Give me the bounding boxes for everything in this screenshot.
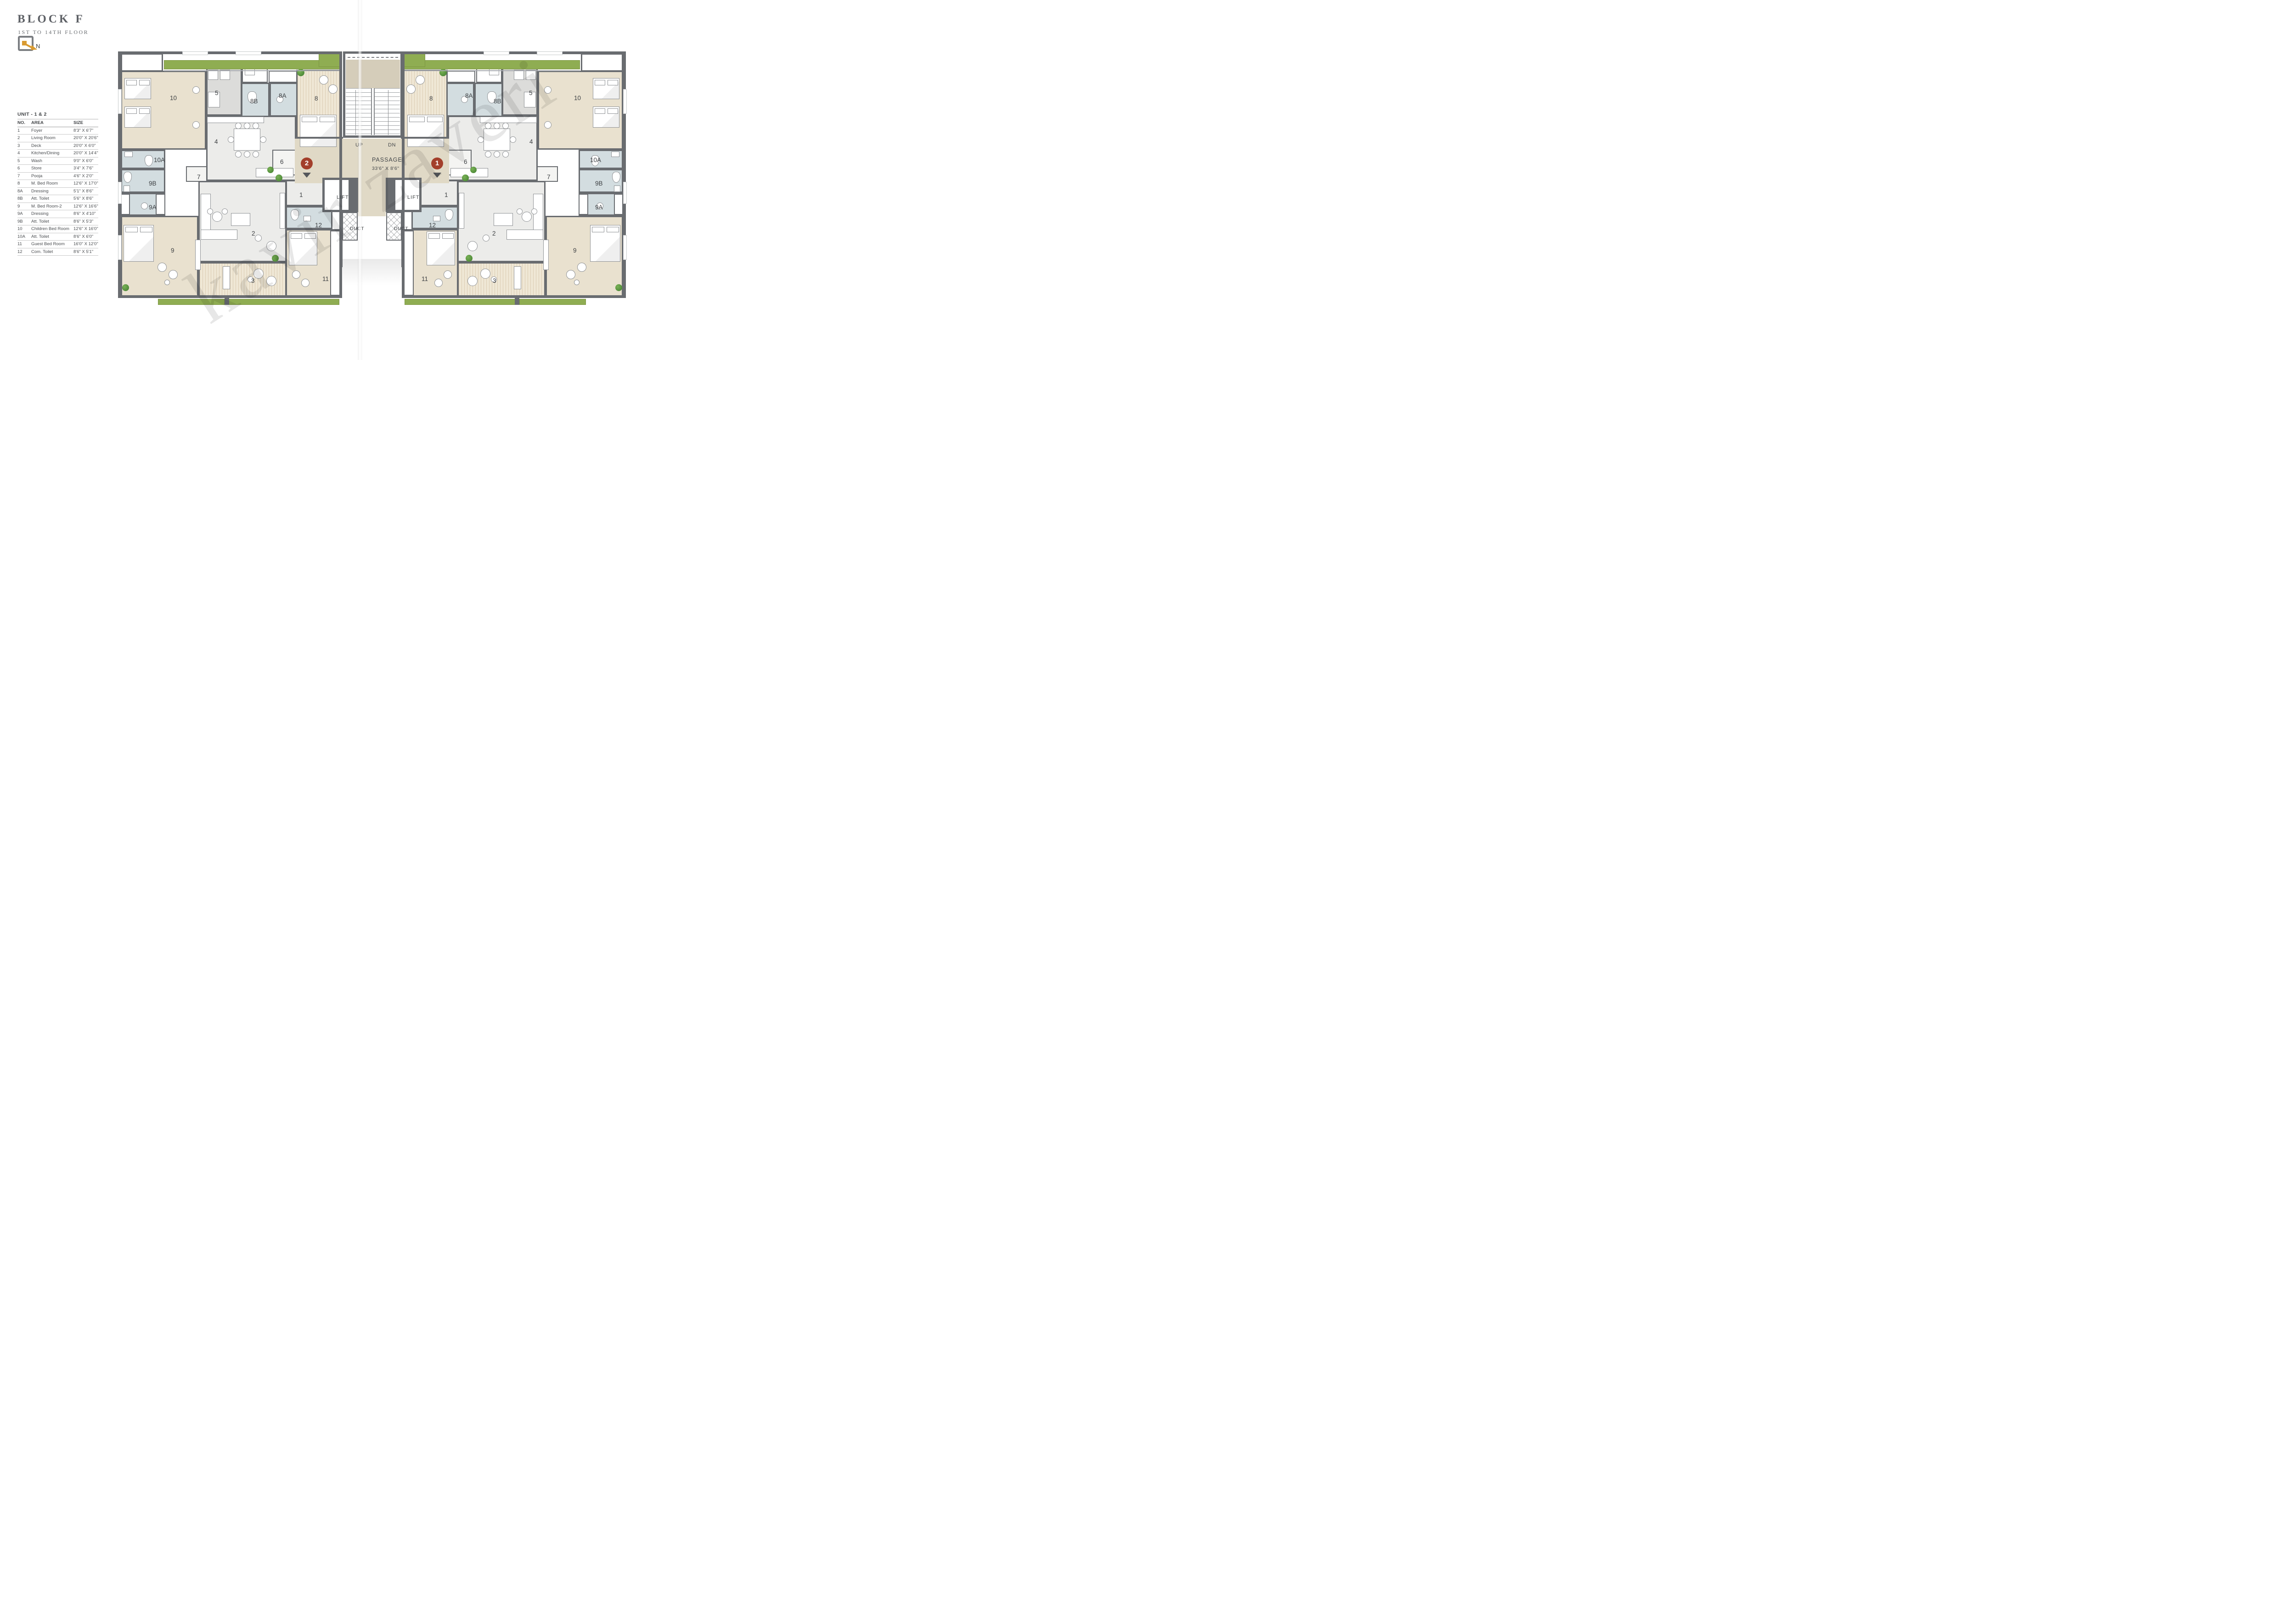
sink-sink-18-left (124, 152, 133, 157)
window-0-right (623, 89, 627, 114)
furniture-rect-6-right (494, 213, 513, 226)
legend-cell-size: 8'3" X 6'7" (73, 128, 98, 133)
furniture-chair-circ-38-left (207, 208, 213, 214)
window-top-0-left (182, 51, 208, 55)
balcony-strip-top-right (402, 60, 580, 69)
legend-cell-area: Wash (31, 158, 73, 163)
furniture-rect-5-right (484, 129, 510, 151)
pillow (320, 117, 335, 122)
furniture-rect-7-right (480, 117, 537, 123)
furniture-chair-circ-40-right (467, 241, 478, 251)
furniture-chair-circ-43-right (566, 270, 575, 279)
legend-header-row: NO.AREASIZE (17, 119, 98, 127)
bed-bed-2-left (300, 115, 337, 147)
bed-bed-4-left (289, 231, 317, 265)
floor-range-subtitle: 1ST TO 14TH FLOOR (18, 29, 89, 36)
page-title: BLOCK F (17, 13, 89, 26)
legend-cell-no: 5 (17, 158, 31, 163)
legend-title: UNIT - 1 & 2 (17, 112, 98, 117)
furniture-chair-circ-40-left (266, 241, 276, 251)
legend-row-3: 3Deck20'0" X 6'0" (17, 142, 98, 150)
furniture-chair-circ-25-right (544, 86, 551, 94)
window-top-0-right (537, 51, 563, 55)
furniture-chair-circ-33-left (244, 151, 250, 157)
pillow (607, 227, 619, 232)
furniture-chair-circ-30-right (494, 123, 500, 129)
legend-cell-size: 8'6" X 5'3" (73, 219, 98, 224)
legend-cell-no: 1 (17, 128, 31, 133)
unit-marker-left: 2 (301, 157, 313, 169)
legend-header-area: AREA (31, 120, 73, 125)
plant-53-left (267, 167, 274, 173)
furniture-chair-circ-33-right (494, 151, 500, 157)
legend-cell-size: 12'6" X 16'0" (73, 226, 98, 231)
pillow (126, 80, 137, 85)
pillow (595, 108, 605, 114)
passage-tongue (358, 183, 386, 216)
window-2-right (623, 235, 627, 260)
room-closet-8a-top-left (269, 71, 298, 83)
legend-cell-no: 9 (17, 204, 31, 209)
plant-56-left (122, 284, 129, 291)
balcony-strip-bottom-b-left (228, 299, 339, 305)
window-0-left (118, 89, 122, 114)
balcony-strip-bottom-a-left (158, 299, 225, 305)
furniture-chair-circ-34-left (253, 151, 259, 157)
furniture-rect-15-right (514, 70, 524, 80)
furniture-chair-circ-29-left (235, 123, 242, 129)
legend-row-9A: 9ADressing8'6" X 4'10" (17, 210, 98, 218)
furniture-chair-circ-35-right (510, 136, 516, 143)
furniture-chair-circ-31-right (485, 123, 491, 129)
furniture-rect-14-left (208, 70, 218, 80)
bed-bed-0-right (593, 78, 619, 99)
room-closet-top-left (121, 53, 163, 72)
stair-landing (346, 60, 400, 88)
furniture-chair-circ-48-left (292, 270, 300, 279)
sink-sink-18-right (611, 152, 619, 157)
furniture-chair-circ-25-left (192, 86, 200, 94)
pillow (442, 233, 454, 239)
furniture-chair-circ-27-left (319, 75, 328, 84)
legend-cell-size: 9'0" X 6'0" (73, 158, 98, 163)
legend-cell-area: Living Room (31, 135, 73, 141)
balcony-rail-top-left (164, 70, 342, 71)
furniture-rect-13-left (201, 230, 237, 240)
unit-marker-left-pointer (303, 173, 311, 178)
legend-row-8: 8M. Bed Room12'6" X 17'0" (17, 180, 98, 188)
lift-wall-right (386, 178, 393, 212)
legend-cell-no: 11 (17, 242, 31, 247)
bed-bed-4-right (427, 231, 455, 265)
pillow (291, 233, 302, 239)
legend-header-size: SIZE (73, 120, 98, 125)
legend-cell-no: 10A (17, 234, 31, 239)
unit-marker-right: 1 (431, 157, 443, 169)
legend-row-9B: 9BAtt. Toilet8'6" X 5'3" (17, 218, 98, 226)
legend-cell-area: Com. Toilet (31, 249, 73, 254)
furniture-chair-circ-48-right (444, 270, 452, 279)
furniture-chair-circ-38-right (531, 208, 537, 214)
bed-bed-0-left (124, 78, 151, 99)
furniture-chair-circ-36-left (260, 136, 266, 143)
bed-bed-3-right (590, 225, 620, 262)
furniture-rect-6-left (231, 213, 250, 226)
balcony-strip-bottom-b-right (405, 299, 516, 305)
room-closet-9a-right-right (579, 194, 588, 215)
room-closet-9a-left-left (121, 194, 130, 215)
plant-55-left (272, 255, 279, 262)
legend-row-7: 7Pooja4'6" X 2'0" (17, 173, 98, 180)
legend-row-10: 10Children Bed Room12'6" X 16'0" (17, 225, 98, 233)
furniture-chair-circ-41-left (255, 235, 262, 242)
legend-cell-area: Foyer (31, 128, 73, 133)
furniture-rect-5-left (234, 129, 260, 151)
room-dressing-8a-right (446, 83, 474, 117)
legend-cell-no: 10 (17, 226, 31, 231)
sink-sink-19-left (124, 185, 130, 192)
legend-row-12: 12Com. Toilet8'6" X 5'1" (17, 248, 98, 256)
north-icon (18, 36, 64, 54)
furniture-chair-circ-41-right (483, 235, 490, 242)
legend-cell-size: 8'6" X 6'0" (73, 234, 98, 239)
legend-row-4: 4Kitchen/Dining20'0" X 14'4" (17, 150, 98, 157)
legend-cell-area: Deck (31, 143, 73, 148)
legend-cell-area: Kitchen/Dining (31, 151, 73, 156)
corridor-shadow (343, 259, 401, 286)
bed-bed-3-left (124, 225, 154, 262)
passage-wall-left (295, 137, 343, 139)
furniture-rect-10-left (280, 193, 285, 229)
sink-sink-20-left (304, 216, 311, 221)
legend-row-11: 11Guest Bed Room16'0" X 12'0" (17, 241, 98, 248)
furniture-rect-7-left (207, 117, 264, 123)
lift-wall-left (351, 178, 358, 212)
furniture-chair-circ-51-left (141, 202, 148, 209)
pillow (304, 233, 316, 239)
legend-cell-no: 8B (17, 196, 31, 201)
furniture-chair-circ-28-right (406, 84, 416, 94)
furniture-chair-circ-49-left (301, 279, 310, 287)
legend-cell-area: Dressing (31, 211, 73, 216)
furniture-chair-circ-27-right (416, 75, 425, 84)
pillow (428, 233, 440, 239)
furniture-chair-circ-32-left (235, 151, 242, 157)
stair-dashed-line (348, 57, 398, 58)
north-label: N (36, 43, 40, 50)
legend-cell-size: 20'0" X 14'4" (73, 151, 98, 156)
unit-marker-right-pointer (433, 173, 441, 178)
legend-row-1: 1Foyer8'3" X 6'7" (17, 127, 98, 135)
furniture-chair-circ-37-right (522, 212, 532, 222)
room-dressing-8a-left (270, 83, 298, 117)
passage-wall-right (401, 137, 449, 139)
legend-cell-area: M. Bed Room (31, 181, 73, 186)
sink-sink-20-right (433, 216, 440, 221)
furniture-chair-circ-31-left (253, 123, 259, 129)
plant-53-right (470, 167, 477, 173)
legend-cell-area: Guest Bed Room (31, 242, 73, 247)
legend-cell-no: 9A (17, 211, 31, 216)
pillow (139, 80, 150, 85)
pillow (608, 80, 618, 85)
pillow (126, 108, 137, 114)
furniture-chair-circ-36-right (478, 136, 484, 143)
legend-cell-size: 3'4" X 7'6" (73, 166, 98, 171)
corridor-wall-left (340, 212, 343, 267)
pillow (595, 80, 605, 85)
balcony-strip-bottom-a-right (519, 299, 586, 305)
legend-cell-area: Pooja (31, 174, 73, 179)
furniture-rect-14-right (526, 70, 536, 80)
furniture-rect-13-right (506, 230, 543, 240)
bed-bed-1-right (593, 107, 619, 128)
legend-cell-area: Att. Toilet (31, 196, 73, 201)
legend-cell-size: 20'0" X 6'0" (73, 143, 98, 148)
furniture-chair-circ-45-left (253, 269, 264, 279)
legend-cell-area: Dressing (31, 189, 73, 194)
legend-row-2: 2Living Room20'0" X 20'6" (17, 135, 98, 142)
furniture-chair-circ-39-right (517, 208, 523, 214)
legend-cell-no: 8A (17, 189, 31, 194)
furniture-rect-8-right (450, 168, 488, 177)
stair-dn-line (388, 90, 388, 135)
legend-row-8B: 8BAtt. Toilet5'6" X 8'6" (17, 195, 98, 203)
legend-cell-size: 8'6" X 5'1" (73, 249, 98, 254)
furniture-chair-circ-37-left (212, 212, 222, 222)
balcony-pier-left (225, 297, 229, 305)
room-closet-top-right (581, 53, 623, 72)
legend-table: UNIT - 1 & 2 NO.AREASIZE1Foyer8'3" X 6'7… (17, 112, 98, 256)
window-top-1-left (236, 51, 261, 55)
legend-cell-size: 4'6" X 2'0" (73, 174, 98, 179)
furniture-chair-circ-46-right (467, 276, 478, 286)
bed-bed-2-right (407, 115, 444, 147)
room-guest-wardrobe-right (404, 230, 414, 296)
legend-cell-area: M. Bed Room-2 (31, 204, 73, 209)
plant-56-right (615, 284, 622, 291)
legend-cell-no: 3 (17, 143, 31, 148)
balcony-pier-right (515, 297, 519, 305)
furniture-chair-circ-46-left (266, 276, 276, 286)
legend-cell-no: 8 (17, 181, 31, 186)
legend-cell-no: 9B (17, 219, 31, 224)
pillow (140, 227, 152, 232)
legend-cell-size: 20'0" X 20'6" (73, 135, 98, 141)
pillow (427, 117, 443, 122)
room-closet-8a-top-right (446, 71, 475, 83)
corridor-wall-right (401, 212, 404, 267)
furniture-chair-circ-45-right (480, 269, 490, 279)
room-closet-9a-left-right (614, 194, 623, 215)
balcony-strip-top-left (164, 60, 342, 69)
legend-row-9: 9M. Bed Room-212'6" X 16'6" (17, 203, 98, 211)
furniture-chair-circ-43-left (169, 270, 178, 279)
legend-cell-size: 12'6" X 17'0" (73, 181, 98, 186)
furniture-rect-10-right (459, 193, 464, 229)
furniture-rect-8-left (256, 168, 293, 177)
legend-cell-no: 2 (17, 135, 31, 141)
furniture-chair-circ-26-left (192, 121, 200, 129)
furniture-rect-9-left (223, 266, 230, 289)
stair-up-line (355, 90, 356, 135)
core-green-left (319, 53, 342, 67)
legend-cell-area: Children Bed Room (31, 226, 73, 231)
floor-plan: 1058B8A846710A9B9A123911121058B8A846710A… (118, 48, 626, 315)
furniture-rect-9-right (514, 266, 521, 289)
legend-row-6: 6Store3'4" X 7'6" (17, 165, 98, 173)
legend-row-5: 5Wash9'0" X 6'0" (17, 157, 98, 165)
room-closet-9a-right-left (156, 194, 165, 215)
furniture-chair-circ-26-right (544, 121, 551, 129)
legend-cell-size: 8'6" X 4'10" (73, 211, 98, 216)
legend-cell-size: 16'0" X 12'0" (73, 242, 98, 247)
balcony-rail-top-right (402, 70, 580, 71)
window-top-1-right (484, 51, 509, 55)
room-pooja-room-left (186, 166, 207, 182)
legend-row-8A: 8ADressing5'1" X 8'6" (17, 188, 98, 196)
pillow (409, 117, 425, 122)
floor-plan-page: { "title": { "block": "BLOCK F", "floors… (0, 0, 720, 360)
plant-54-left (276, 174, 282, 181)
pillow (608, 108, 618, 114)
furniture-chair-circ-30-left (244, 123, 250, 129)
furniture-rect-11-left (195, 240, 201, 270)
core-green-right (402, 53, 425, 67)
pillow (139, 108, 150, 114)
sink-sink-19-right (614, 185, 620, 192)
furniture-chair-circ-49-right (434, 279, 443, 287)
legend-cell-size: 5'6" X 8'6" (73, 196, 98, 201)
pillow (592, 227, 604, 232)
furniture-chair-circ-35-left (228, 136, 234, 143)
plant-55-right (466, 255, 473, 262)
furniture-chair-circ-34-right (485, 151, 491, 157)
legend-body: NO.AREASIZE1Foyer8'3" X 6'7"2Living Room… (17, 119, 98, 256)
pillow (125, 227, 138, 232)
north-compass: N (18, 36, 64, 54)
furniture-rect-11-right (543, 240, 549, 270)
window-2-left (118, 235, 122, 260)
pillow (302, 117, 317, 122)
furniture-chair-circ-44-left (164, 280, 170, 285)
furniture-rect-15-left (220, 70, 230, 80)
legend-cell-size: 12'6" X 16'6" (73, 204, 98, 209)
window-1-right (623, 182, 627, 204)
legend-cell-size: 5'1" X 8'6" (73, 189, 98, 194)
legend-cell-area: Store (31, 166, 73, 171)
furniture-chair-circ-39-left (222, 208, 228, 214)
room-guest-wardrobe-left (330, 230, 340, 296)
legend-header-no: NO. (17, 120, 31, 125)
window-1-left (118, 182, 122, 204)
plant-54-right (462, 174, 469, 181)
legend-cell-area: Att. Toilet (31, 234, 73, 239)
legend-cell-no: 6 (17, 166, 31, 171)
legend-cell-no: 12 (17, 249, 31, 254)
title-block: BLOCK F 1ST TO 14TH FLOOR N (17, 13, 89, 36)
furniture-chair-circ-42-left (158, 263, 167, 272)
legend-row-10A: 10AAtt. Toilet8'6" X 6'0" (17, 233, 98, 241)
legend-cell-no: 7 (17, 174, 31, 179)
legend-cell-no: 4 (17, 151, 31, 156)
furniture-chair-circ-32-right (502, 151, 509, 157)
stair-rail (371, 88, 375, 135)
legend-cell-area: Att. Toilet (31, 219, 73, 224)
furniture-chair-circ-28-left (328, 84, 338, 94)
furniture-chair-circ-29-right (502, 123, 509, 129)
furniture-chair-circ-42-right (577, 263, 586, 272)
furniture-chair-circ-44-right (574, 280, 580, 285)
bed-bed-1-left (124, 107, 151, 128)
